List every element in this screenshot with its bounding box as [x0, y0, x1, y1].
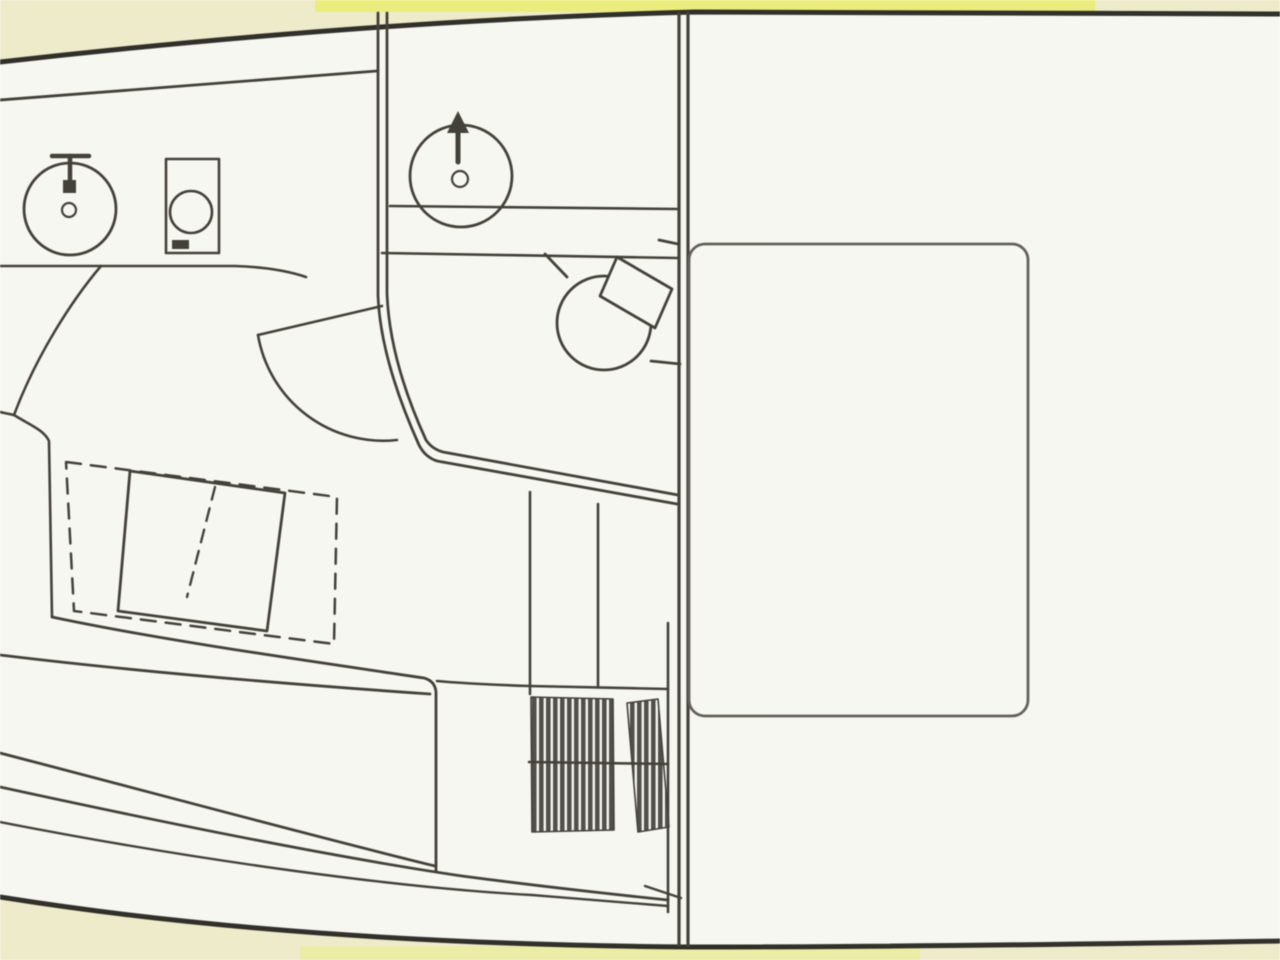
faucet-knob [63, 180, 76, 193]
step-tread-hatched-1 [531, 697, 614, 832]
stove-control [172, 240, 189, 249]
scanned-floor-plan-page: Boat interior floor plan — scanned line … [0, 0, 1280, 960]
floor-plan-drawing [0, 0, 1280, 960]
